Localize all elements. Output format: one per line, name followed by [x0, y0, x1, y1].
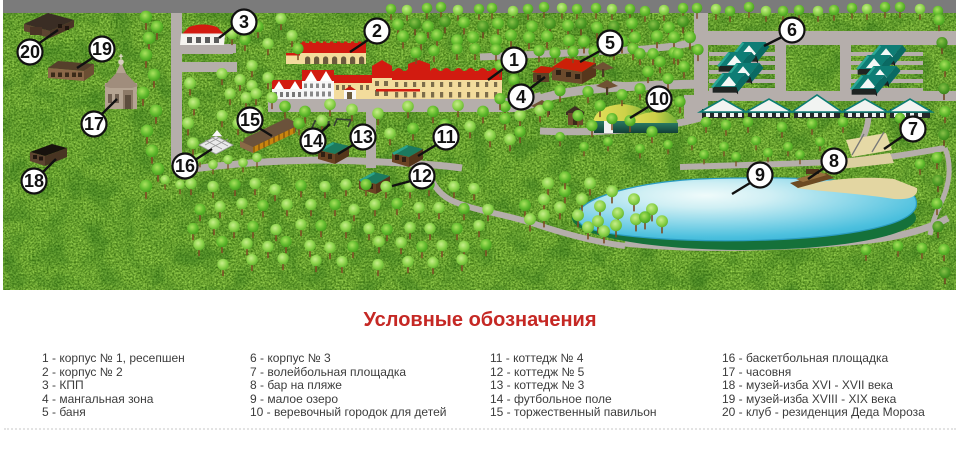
svg-text:16: 16: [175, 156, 195, 176]
svg-text:8: 8: [829, 151, 839, 171]
svg-text:20: 20: [20, 42, 40, 62]
svg-text:13: 13: [353, 127, 373, 147]
svg-text:4: 4: [516, 87, 526, 107]
svg-text:9: 9: [755, 165, 765, 185]
svg-text:19: 19: [92, 39, 112, 59]
svg-text:10: 10: [649, 89, 669, 109]
svg-text:17: 17: [84, 114, 104, 134]
svg-text:1: 1: [509, 50, 519, 70]
svg-text:3: 3: [239, 12, 249, 32]
svg-text:5: 5: [605, 33, 615, 53]
svg-text:6: 6: [787, 20, 797, 40]
svg-text:18: 18: [24, 171, 44, 191]
svg-text:11: 11: [436, 127, 455, 147]
svg-text:14: 14: [303, 131, 323, 151]
svg-text:7: 7: [908, 119, 918, 139]
svg-text:15: 15: [240, 110, 260, 130]
svg-text:12: 12: [412, 166, 432, 186]
svg-text:2: 2: [372, 21, 382, 41]
